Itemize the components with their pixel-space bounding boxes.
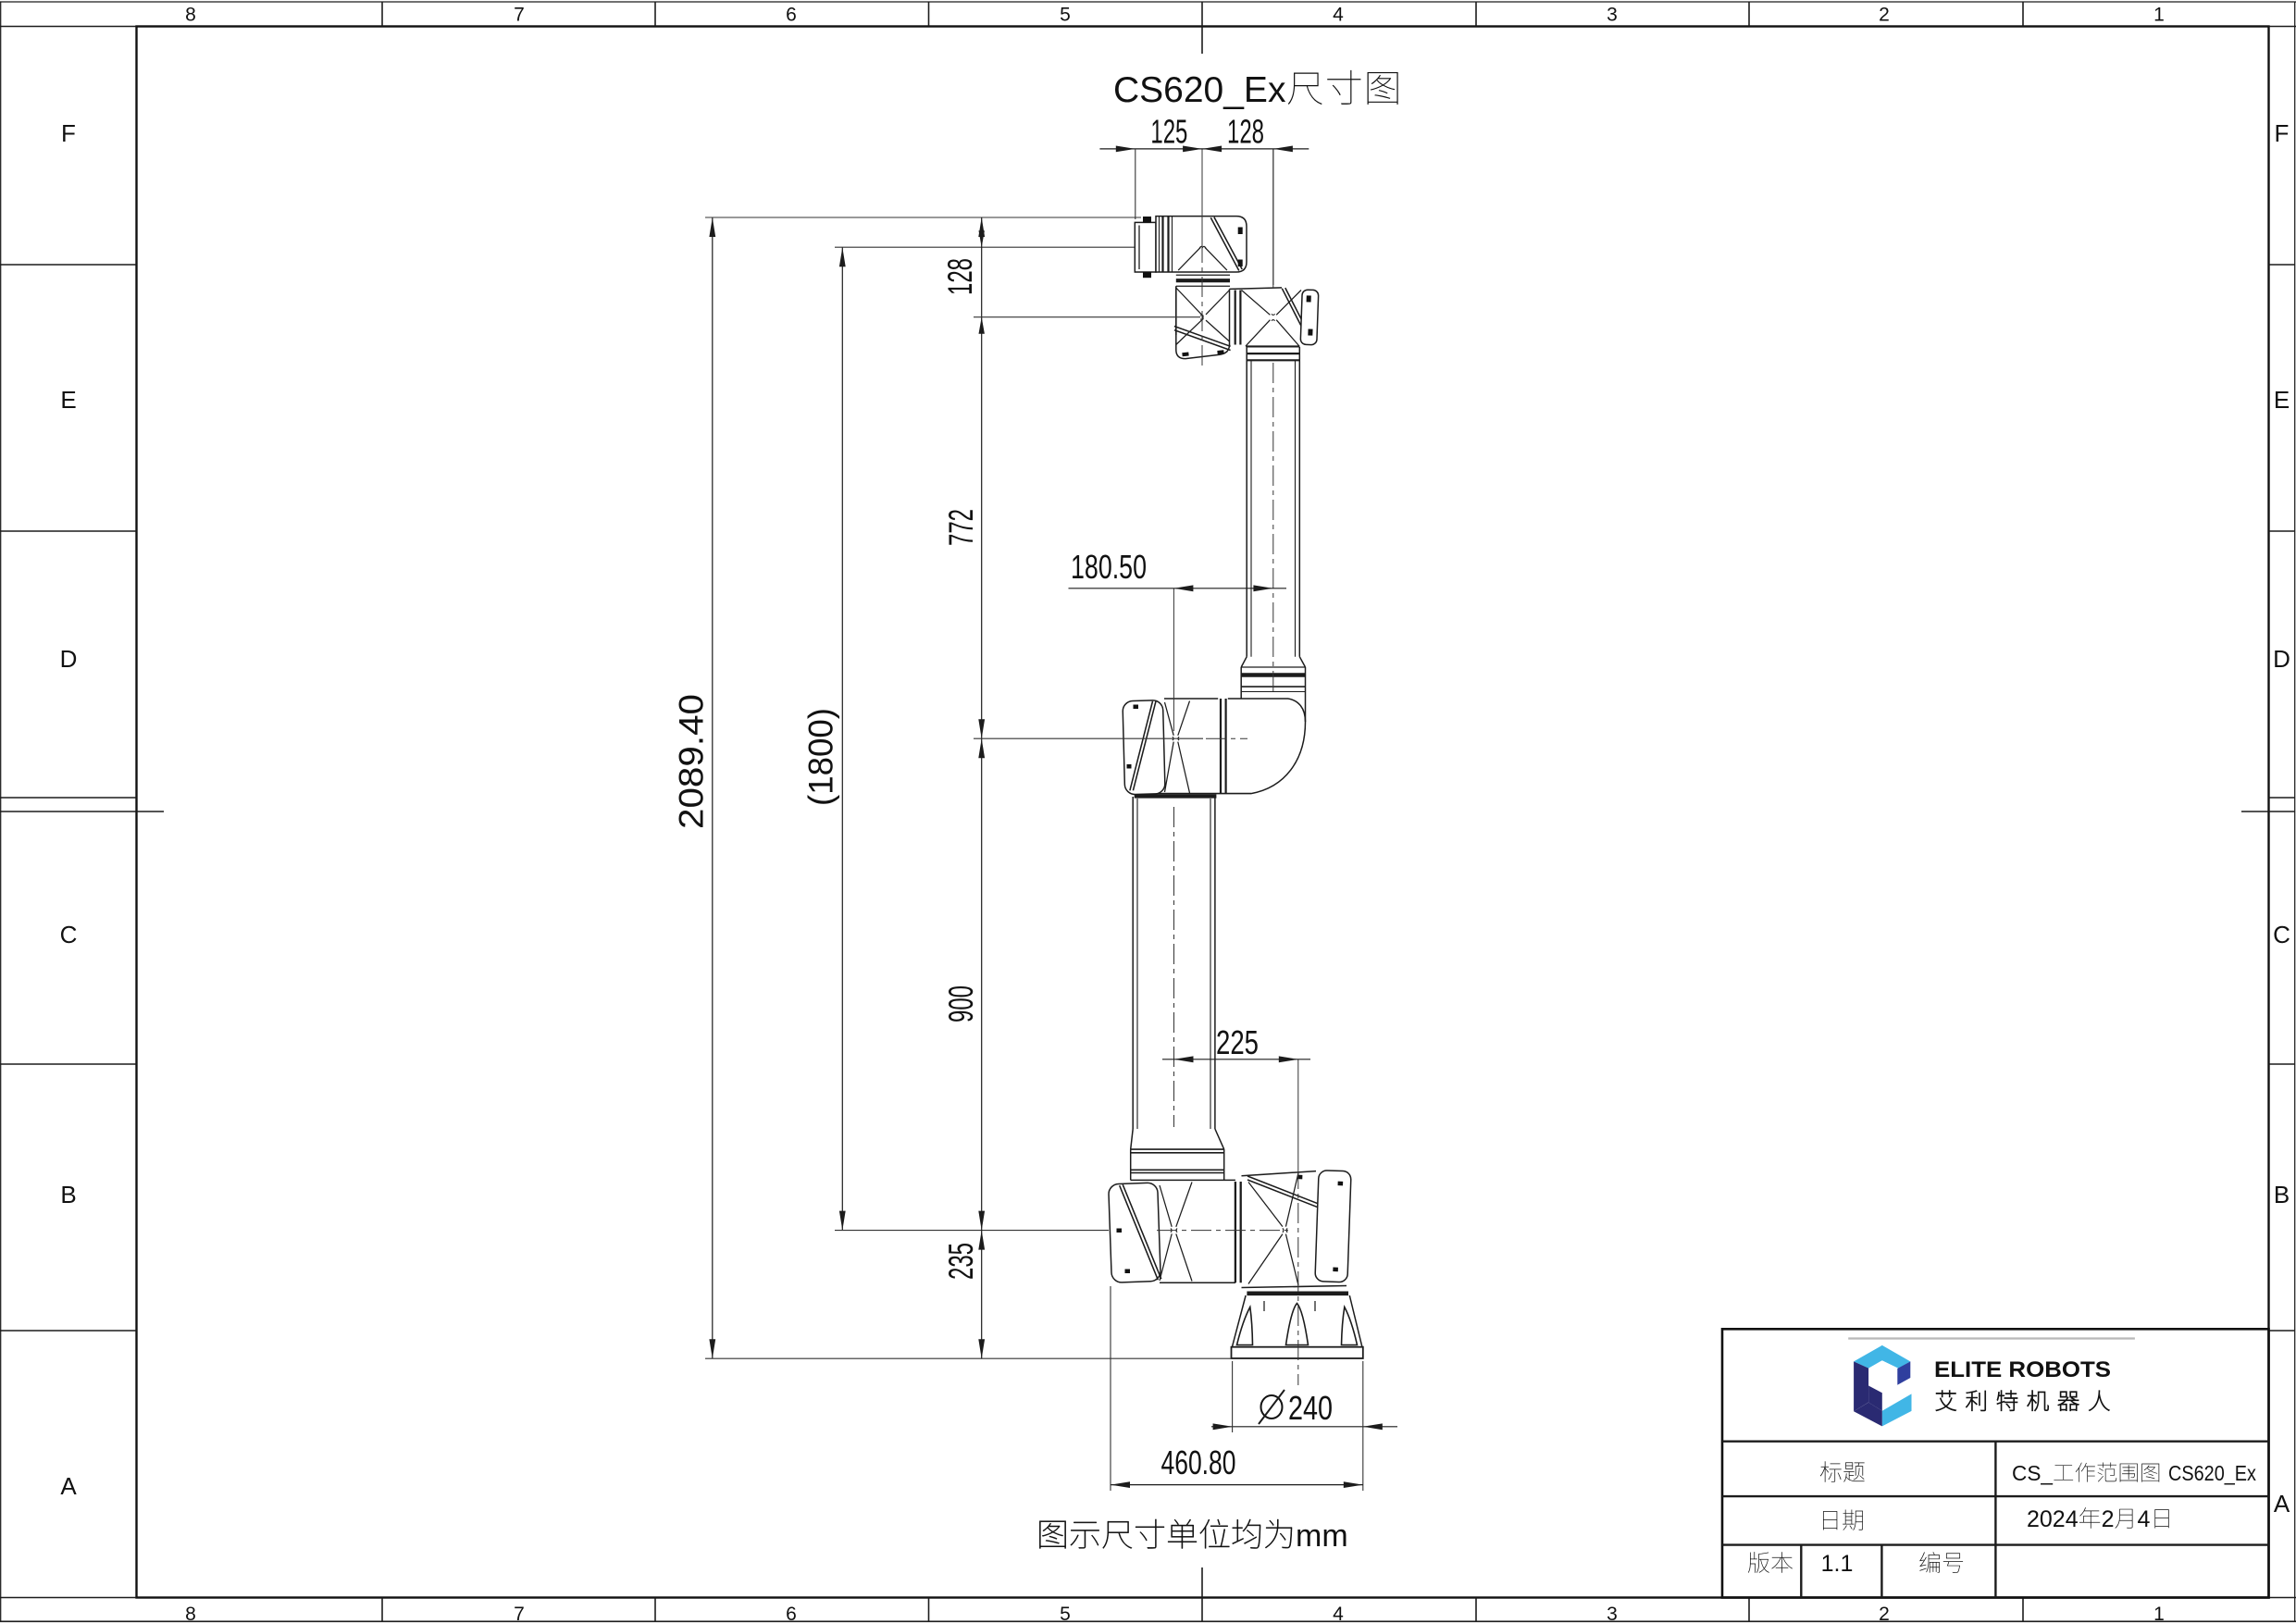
svg-text:128: 128: [1227, 113, 1264, 151]
svg-text:5: 5: [1060, 5, 1071, 26]
svg-text:2: 2: [2102, 1506, 2115, 1532]
svg-text:2024: 2024: [2027, 1506, 2079, 1532]
svg-text:E: E: [2274, 386, 2290, 414]
svg-text:7: 7: [514, 1604, 525, 1623]
svg-text:D: D: [2273, 645, 2290, 673]
svg-text:A: A: [60, 1472, 77, 1500]
svg-text:128: 128: [941, 258, 979, 295]
svg-text:6: 6: [786, 5, 797, 26]
svg-text:4: 4: [1333, 1604, 1344, 1623]
svg-text:180.50: 180.50: [1071, 548, 1147, 586]
svg-text:8: 8: [185, 5, 196, 26]
svg-text:F: F: [61, 119, 76, 147]
svg-text:7: 7: [514, 5, 525, 26]
svg-text:8: 8: [185, 1604, 196, 1623]
svg-text:225: 225: [1216, 1023, 1259, 1061]
svg-text:235: 235: [942, 1243, 980, 1280]
svg-text:(1800): (1800): [801, 708, 839, 806]
svg-text:CS620_Ex: CS620_Ex: [1113, 70, 1286, 110]
svg-text:3: 3: [1607, 1604, 1618, 1623]
svg-text:2: 2: [1879, 5, 1890, 26]
svg-text:6: 6: [786, 1604, 797, 1623]
svg-text:E: E: [60, 386, 76, 414]
svg-text:C: C: [2273, 921, 2290, 948]
svg-text:4: 4: [1333, 5, 1344, 26]
svg-text:C: C: [60, 921, 78, 948]
svg-text:240: 240: [1288, 1389, 1333, 1427]
svg-text:F: F: [2275, 119, 2290, 147]
svg-text:4: 4: [2138, 1506, 2151, 1532]
svg-text:1.1: 1.1: [1821, 1551, 1854, 1577]
svg-text:460.80: 460.80: [1161, 1443, 1236, 1481]
svg-text:2: 2: [1879, 1604, 1890, 1623]
svg-text:5: 5: [1060, 1604, 1071, 1623]
svg-text:B: B: [2274, 1181, 2290, 1208]
svg-text:1: 1: [2153, 1604, 2165, 1623]
svg-text:2089.40: 2089.40: [673, 694, 711, 829]
svg-text:mm: mm: [1296, 1518, 1348, 1554]
svg-text:900: 900: [942, 985, 980, 1022]
svg-text:3: 3: [1607, 5, 1618, 26]
svg-text:B: B: [60, 1181, 76, 1208]
svg-text:A: A: [2274, 1490, 2290, 1518]
svg-text:ELITE ROBOTS: ELITE ROBOTS: [1934, 1357, 2111, 1382]
svg-text:CS_: CS_: [2012, 1461, 2054, 1485]
svg-text:1: 1: [2153, 5, 2165, 26]
svg-text:772: 772: [942, 509, 980, 546]
svg-text:D: D: [60, 645, 78, 673]
svg-text:CS620_Ex: CS620_Ex: [2168, 1461, 2256, 1485]
svg-text:125: 125: [1150, 113, 1187, 151]
